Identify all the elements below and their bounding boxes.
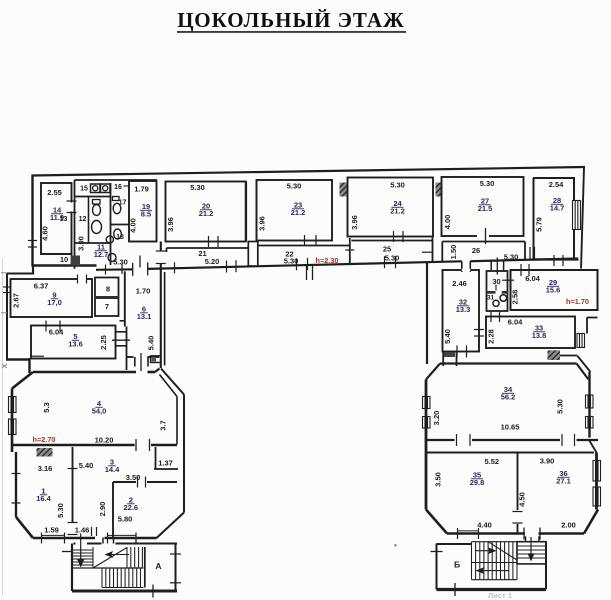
svg-text:27.1: 27.1 [556,476,571,485]
svg-text:10.20: 10.20 [95,436,114,445]
svg-text:13: 13 [60,216,68,223]
svg-text:5.30: 5.30 [56,503,65,518]
svg-text:1.70: 1.70 [136,287,151,296]
svg-text:4.50: 4.50 [518,492,527,507]
svg-text:h=2.70: h=2.70 [33,435,56,444]
svg-text:5.79: 5.79 [535,217,544,232]
svg-text:6.04: 6.04 [525,274,540,283]
svg-text:5.40: 5.40 [443,329,452,344]
svg-text:1.50: 1.50 [449,245,458,260]
svg-text:2.28: 2.28 [487,329,496,344]
svg-text:12: 12 [79,216,87,223]
svg-text:5.20: 5.20 [205,257,220,266]
svg-text:2.25: 2.25 [99,335,108,350]
svg-text:5.40: 5.40 [79,461,94,470]
svg-text:54,0: 54,0 [92,406,107,415]
svg-text:2.90: 2.90 [98,502,107,517]
svg-text:13.1: 13.1 [137,312,152,321]
svg-text:15.6: 15.6 [546,285,561,294]
svg-text:5.52: 5.52 [484,457,499,466]
svg-text:3.00: 3.00 [77,236,86,251]
svg-text:3.16: 3.16 [38,464,53,473]
svg-text:1.79: 1.79 [134,185,149,194]
svg-text:5.30: 5.30 [113,258,128,267]
svg-text:5.30: 5.30 [504,253,519,262]
svg-text:2.55: 2.55 [47,188,62,197]
svg-text:2.67: 2.67 [12,293,21,308]
svg-text:7: 7 [105,302,109,311]
svg-text:Лист 1: Лист 1 [488,591,512,600]
svg-text:10.65: 10.65 [501,423,520,432]
svg-text:22.6: 22.6 [123,503,138,512]
svg-text:2.00: 2.00 [561,521,576,530]
svg-text:h=2.30: h=2.30 [316,256,339,265]
svg-text:21.2: 21.2 [199,209,214,218]
svg-text:5.3: 5.3 [42,402,51,412]
svg-text:4.40: 4.40 [477,521,492,530]
svg-text:5.30: 5.30 [287,182,302,191]
svg-text:6.04: 6.04 [49,328,64,337]
svg-text:13.8: 13.8 [532,331,547,340]
svg-text:3.50: 3.50 [126,473,141,482]
svg-text:4.00: 4.00 [443,215,452,230]
svg-text:8.5: 8.5 [141,209,151,218]
svg-text:5.40: 5.40 [147,336,156,351]
svg-text:2.58: 2.58 [511,290,520,305]
svg-text:16.4: 16.4 [36,494,51,503]
svg-text:56.2: 56.2 [501,392,516,401]
svg-text:21.2: 21.2 [291,208,306,217]
svg-text:5.30: 5.30 [556,399,565,414]
svg-text:3.7: 3.7 [159,420,168,430]
svg-text:4.60: 4.60 [41,226,50,241]
svg-text:h=1.70: h=1.70 [566,297,589,306]
svg-text:5.80: 5.80 [118,515,133,524]
svg-text:А: А [155,561,161,571]
svg-text:21.5: 21.5 [478,204,493,213]
svg-text:8: 8 [106,285,110,294]
svg-text:2.46: 2.46 [452,279,467,288]
svg-text:Б: Б [454,560,460,570]
svg-text:3.20: 3.20 [432,411,441,426]
svg-text:10: 10 [60,255,68,264]
svg-text:1.37: 1.37 [158,459,173,468]
svg-text:5.30: 5.30 [390,181,405,190]
svg-text:3.96: 3.96 [350,215,359,230]
svg-text:13.3: 13.3 [456,305,471,314]
svg-text:2.54: 2.54 [549,180,564,189]
svg-text:1.46: 1.46 [75,526,90,535]
svg-text:14.4: 14.4 [105,465,120,474]
svg-text:3.90: 3.90 [540,457,555,466]
svg-text:1.59: 1.59 [44,526,59,535]
svg-text:5.30: 5.30 [284,257,299,266]
svg-text:17: 17 [119,200,127,207]
svg-text:15: 15 [80,186,88,193]
svg-text:12.7: 12.7 [94,250,109,259]
svg-text:3.96: 3.96 [258,216,267,231]
svg-text:29.8: 29.8 [470,478,485,487]
svg-text:16: 16 [114,184,122,191]
svg-text:25: 25 [383,245,391,254]
svg-text:6.04: 6.04 [508,318,523,327]
svg-text:ЦОКОЛЬНЫЙ ЭТАЖ: ЦОКОЛЬНЫЙ ЭТАЖ [177,8,405,32]
svg-text:31: 31 [487,295,495,302]
svg-text:5.30: 5.30 [385,254,400,263]
svg-text:13.6: 13.6 [68,339,83,348]
svg-text:4.00: 4.00 [129,218,138,233]
svg-text:5.30: 5.30 [480,179,495,188]
svg-text:26: 26 [472,246,480,255]
svg-text:3.50: 3.50 [434,472,443,487]
svg-text:5.30: 5.30 [190,183,205,192]
svg-text:21.2: 21.2 [390,206,405,215]
svg-text:14.7: 14.7 [550,203,565,212]
svg-text:3.96: 3.96 [166,217,175,232]
svg-text:17,0: 17,0 [47,298,62,307]
svg-text:18: 18 [116,234,124,241]
svg-text:6.37: 6.37 [34,282,49,291]
